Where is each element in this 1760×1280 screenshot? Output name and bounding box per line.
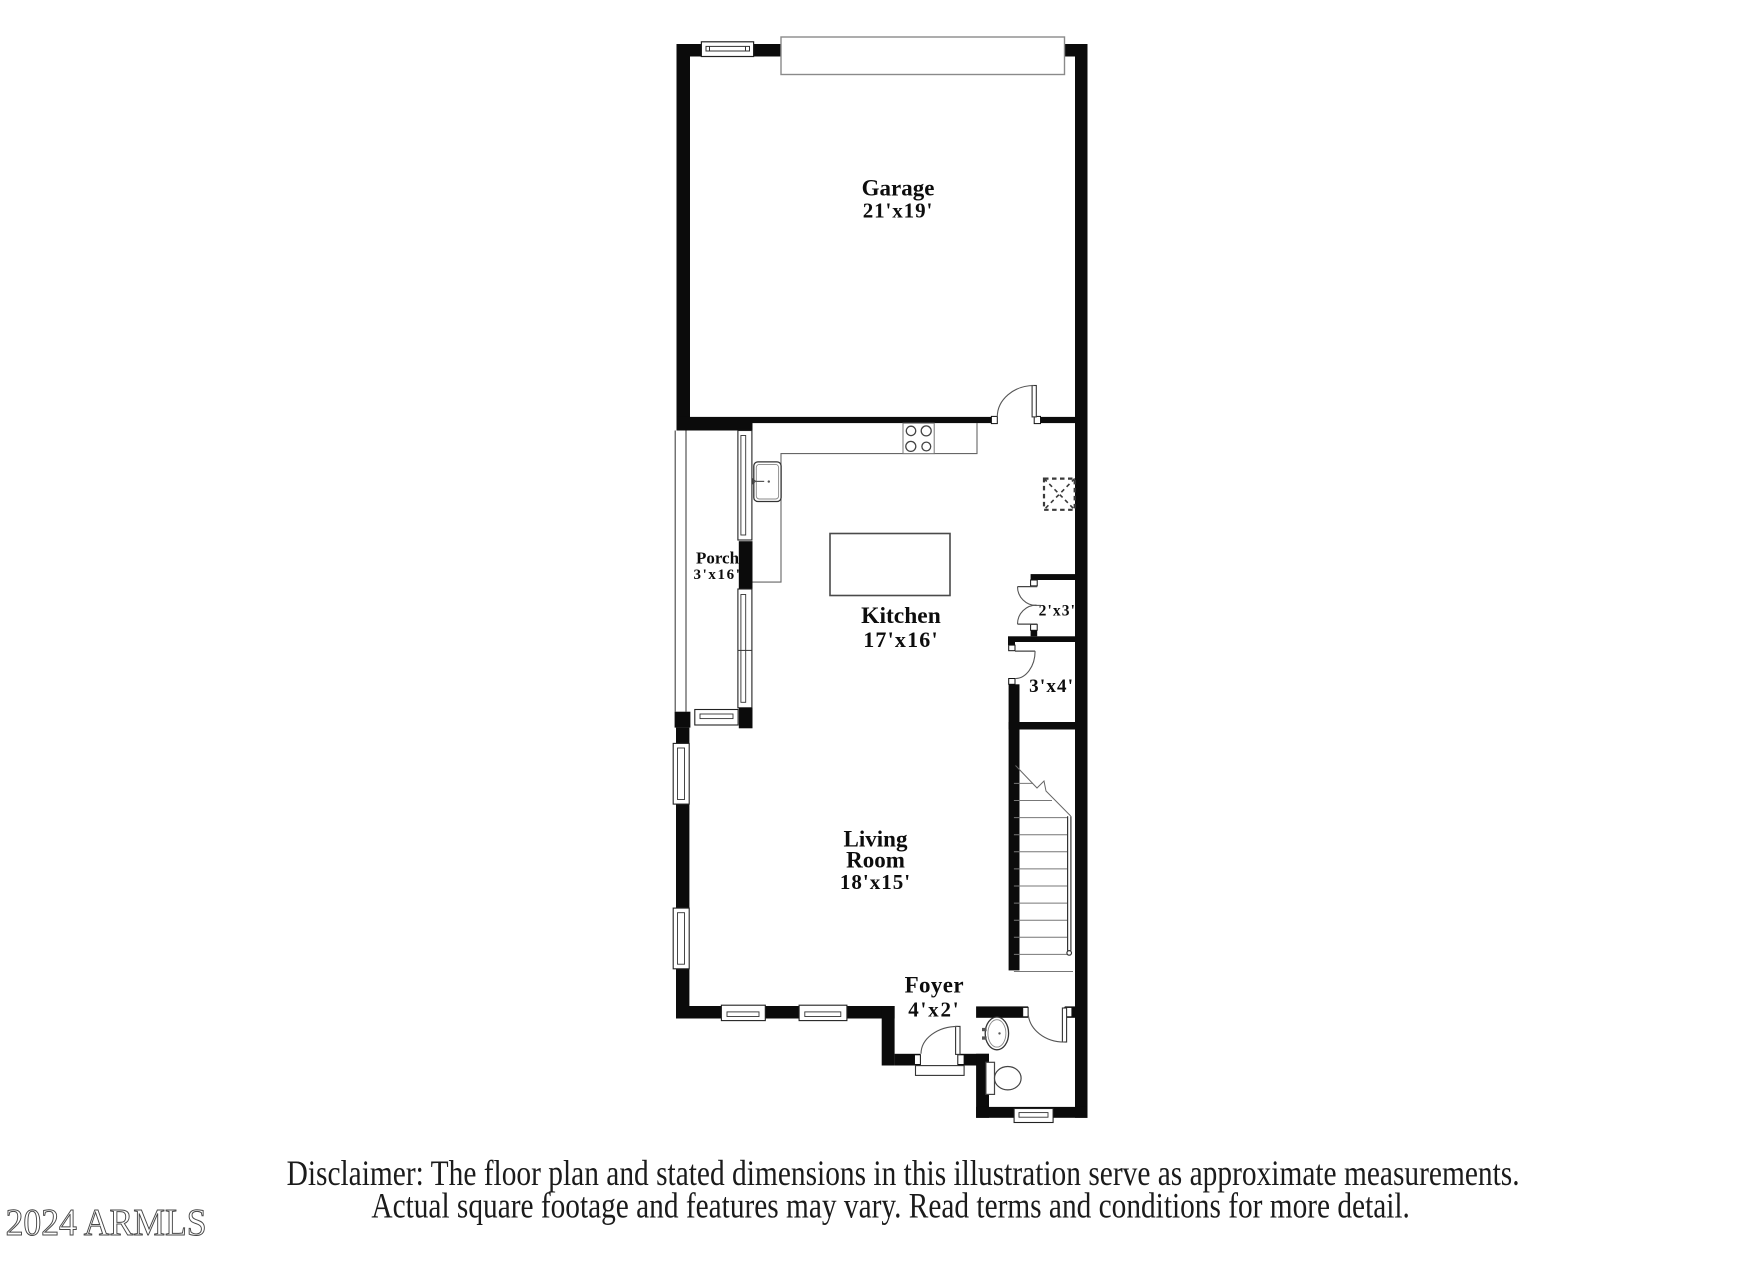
svg-text:21'x19': 21'x19'	[863, 199, 933, 223]
svg-text:Kitchen: Kitchen	[861, 603, 941, 629]
svg-text:3'x4': 3'x4'	[1029, 676, 1074, 697]
svg-text:3'x16': 3'x16'	[694, 567, 742, 583]
svg-text:17'x16': 17'x16'	[863, 627, 939, 652]
svg-text:4'x2': 4'x2'	[908, 997, 960, 1021]
svg-text:2'x3': 2'x3'	[1039, 603, 1076, 620]
svg-text:2024 ARMLS: 2024 ARMLS	[6, 1202, 207, 1244]
svg-text:Porch: Porch	[696, 549, 740, 568]
svg-text:Room: Room	[846, 848, 905, 873]
svg-text:Garage: Garage	[862, 175, 935, 200]
svg-text:18'x15': 18'x15'	[840, 870, 911, 894]
svg-text:Actual square footage and feat: Actual square footage and features may v…	[371, 1186, 1410, 1226]
svg-text:Foyer: Foyer	[905, 972, 964, 997]
